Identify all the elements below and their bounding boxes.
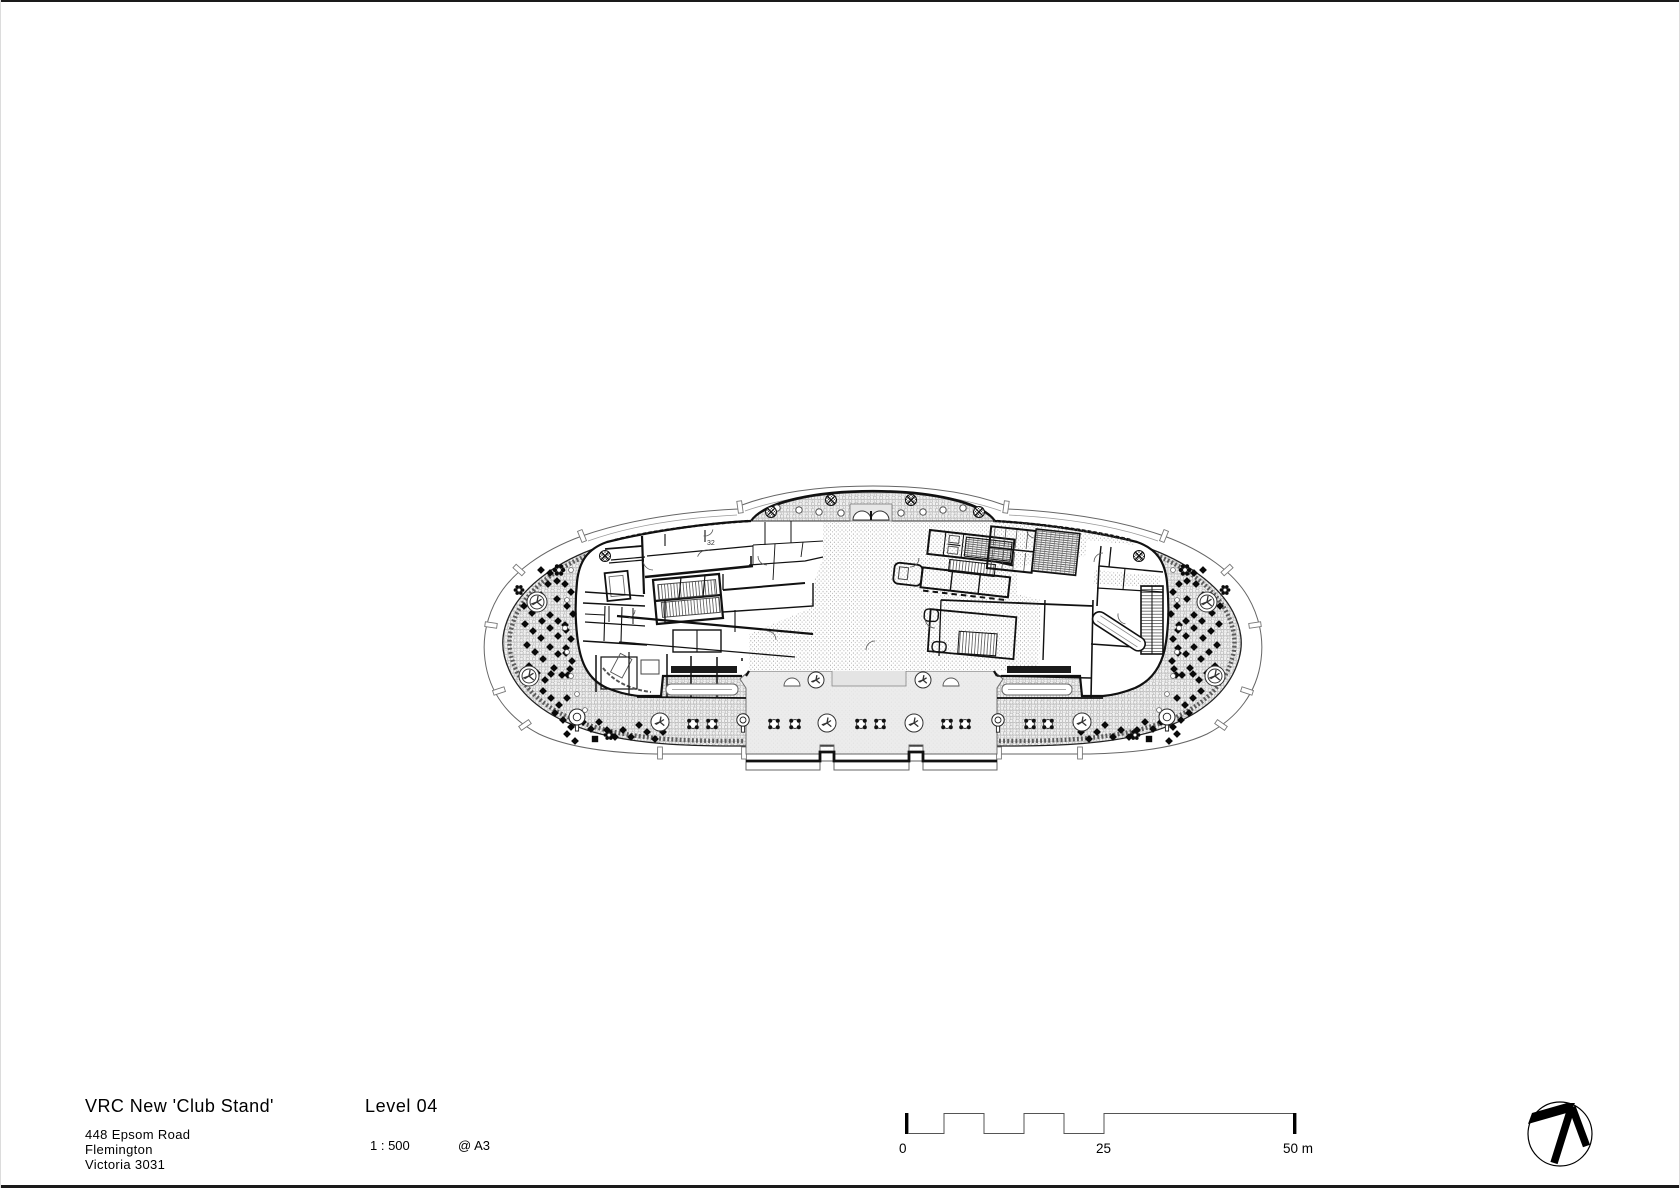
svg-text:0: 0 [899, 1141, 907, 1156]
svg-text:50 m: 50 m [1283, 1141, 1313, 1156]
svg-text:25: 25 [1096, 1141, 1111, 1156]
